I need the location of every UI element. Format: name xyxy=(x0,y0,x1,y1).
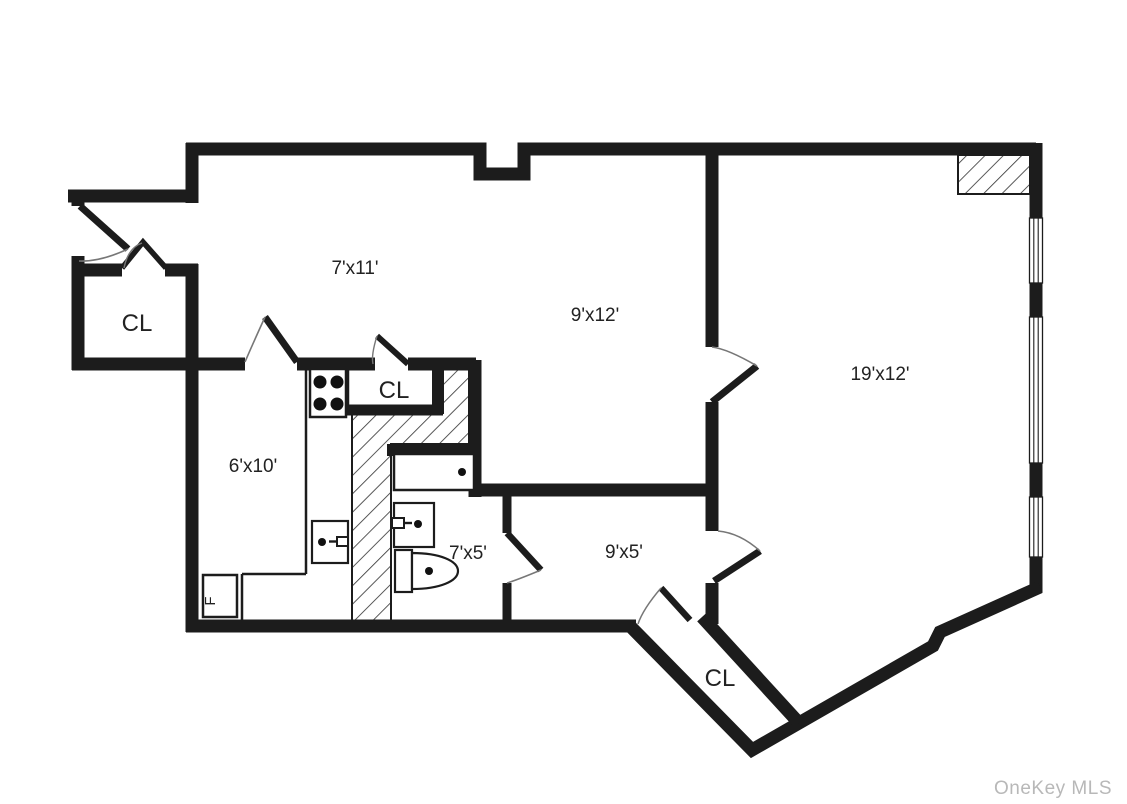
bathtub xyxy=(394,454,474,490)
stove xyxy=(310,369,346,417)
faucet-icon xyxy=(337,537,348,546)
room-label-living: 19'x12' xyxy=(850,364,909,385)
kitchen-closet-door xyxy=(373,336,409,364)
ac-unit-hatch xyxy=(958,155,1030,194)
window xyxy=(1030,497,1043,557)
room-label-kitchen: 6'x10' xyxy=(229,456,277,477)
burner xyxy=(331,398,344,411)
bathroom-door xyxy=(507,533,541,583)
entry-door xyxy=(79,206,128,261)
dining-living-door xyxy=(712,347,757,402)
closet-label-kitchen: CL xyxy=(379,377,410,404)
drain-dot xyxy=(414,520,422,528)
burner xyxy=(314,376,327,389)
closet-label-entry: CL xyxy=(122,310,153,337)
toilet-tank xyxy=(395,550,412,592)
room-label-bathroom: 7'x5' xyxy=(449,543,487,564)
wall xyxy=(630,587,1040,750)
kitchen-door xyxy=(245,317,297,362)
burner xyxy=(314,398,327,411)
living-room-door xyxy=(714,531,760,581)
floor-plan-svg: F 7'x11' 9'x12' 19'x12' 6'x10' 7'x5' 9'x… xyxy=(0,0,1127,804)
refrigerator-label: F xyxy=(202,596,219,605)
corner-closet-door xyxy=(638,588,690,624)
kitchen-sink xyxy=(312,521,348,563)
windows xyxy=(1030,218,1043,557)
kitchen-fixtures: F xyxy=(202,369,348,617)
window xyxy=(1030,218,1043,283)
bathroom-sink xyxy=(392,503,434,547)
room-label-hallway: 9'x5' xyxy=(605,542,643,563)
drain-dot xyxy=(318,538,326,546)
window xyxy=(1030,317,1043,463)
closet-label-corner: CL xyxy=(705,665,736,692)
bathroom-fixtures xyxy=(392,454,474,592)
refrigerator: F xyxy=(202,575,237,617)
watermark: OneKey MLS xyxy=(994,778,1112,799)
burner xyxy=(331,376,344,389)
floor-plan-page: F 7'x11' 9'x12' 19'x12' 6'x10' 7'x5' 9'x… xyxy=(0,0,1127,804)
drain-dot xyxy=(458,468,466,476)
room-label-foyer: 7'x11' xyxy=(331,258,378,279)
toilet-dot xyxy=(425,567,433,575)
wall xyxy=(186,149,1036,174)
faucet-icon xyxy=(392,518,404,528)
walls xyxy=(68,143,1040,750)
room-label-dining: 9'x12' xyxy=(571,305,619,326)
